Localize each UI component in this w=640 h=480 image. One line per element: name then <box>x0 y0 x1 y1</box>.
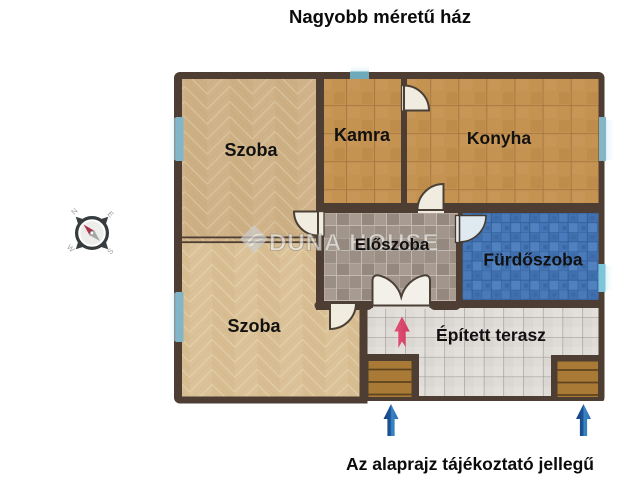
svg-text:Szoba: Szoba <box>227 316 281 336</box>
svg-text:Kamra: Kamra <box>334 125 391 145</box>
svg-text:Előszoba: Előszoba <box>355 235 430 254</box>
svg-text:Épített terasz: Épített terasz <box>436 324 546 345</box>
svg-text:Szoba: Szoba <box>224 140 278 160</box>
svg-text:Nagyobb méretű ház: Nagyobb méretű ház <box>289 6 471 27</box>
svg-text:Az alaprajz tájékoztató jelleg: Az alaprajz tájékoztató jellegű <box>346 454 594 474</box>
svg-text:Konyha: Konyha <box>467 128 531 148</box>
svg-text:Fürdőszoba: Fürdőszoba <box>483 250 582 270</box>
